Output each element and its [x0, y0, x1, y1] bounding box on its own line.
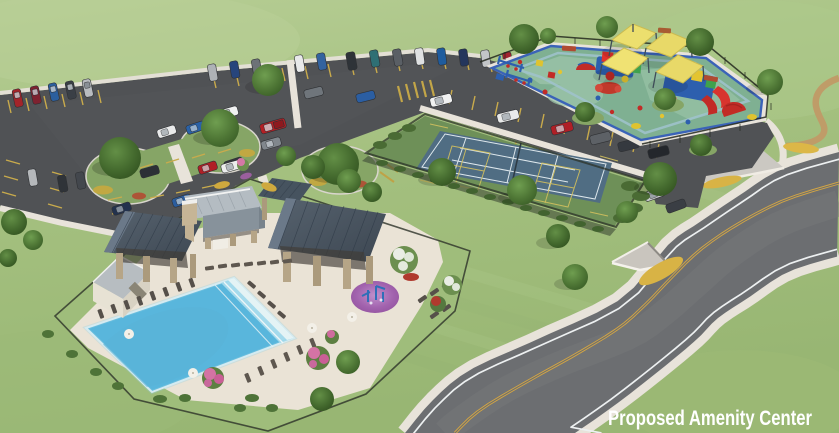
svg-text:Proposed Amenity Center: Proposed Amenity Center: [608, 407, 812, 430]
